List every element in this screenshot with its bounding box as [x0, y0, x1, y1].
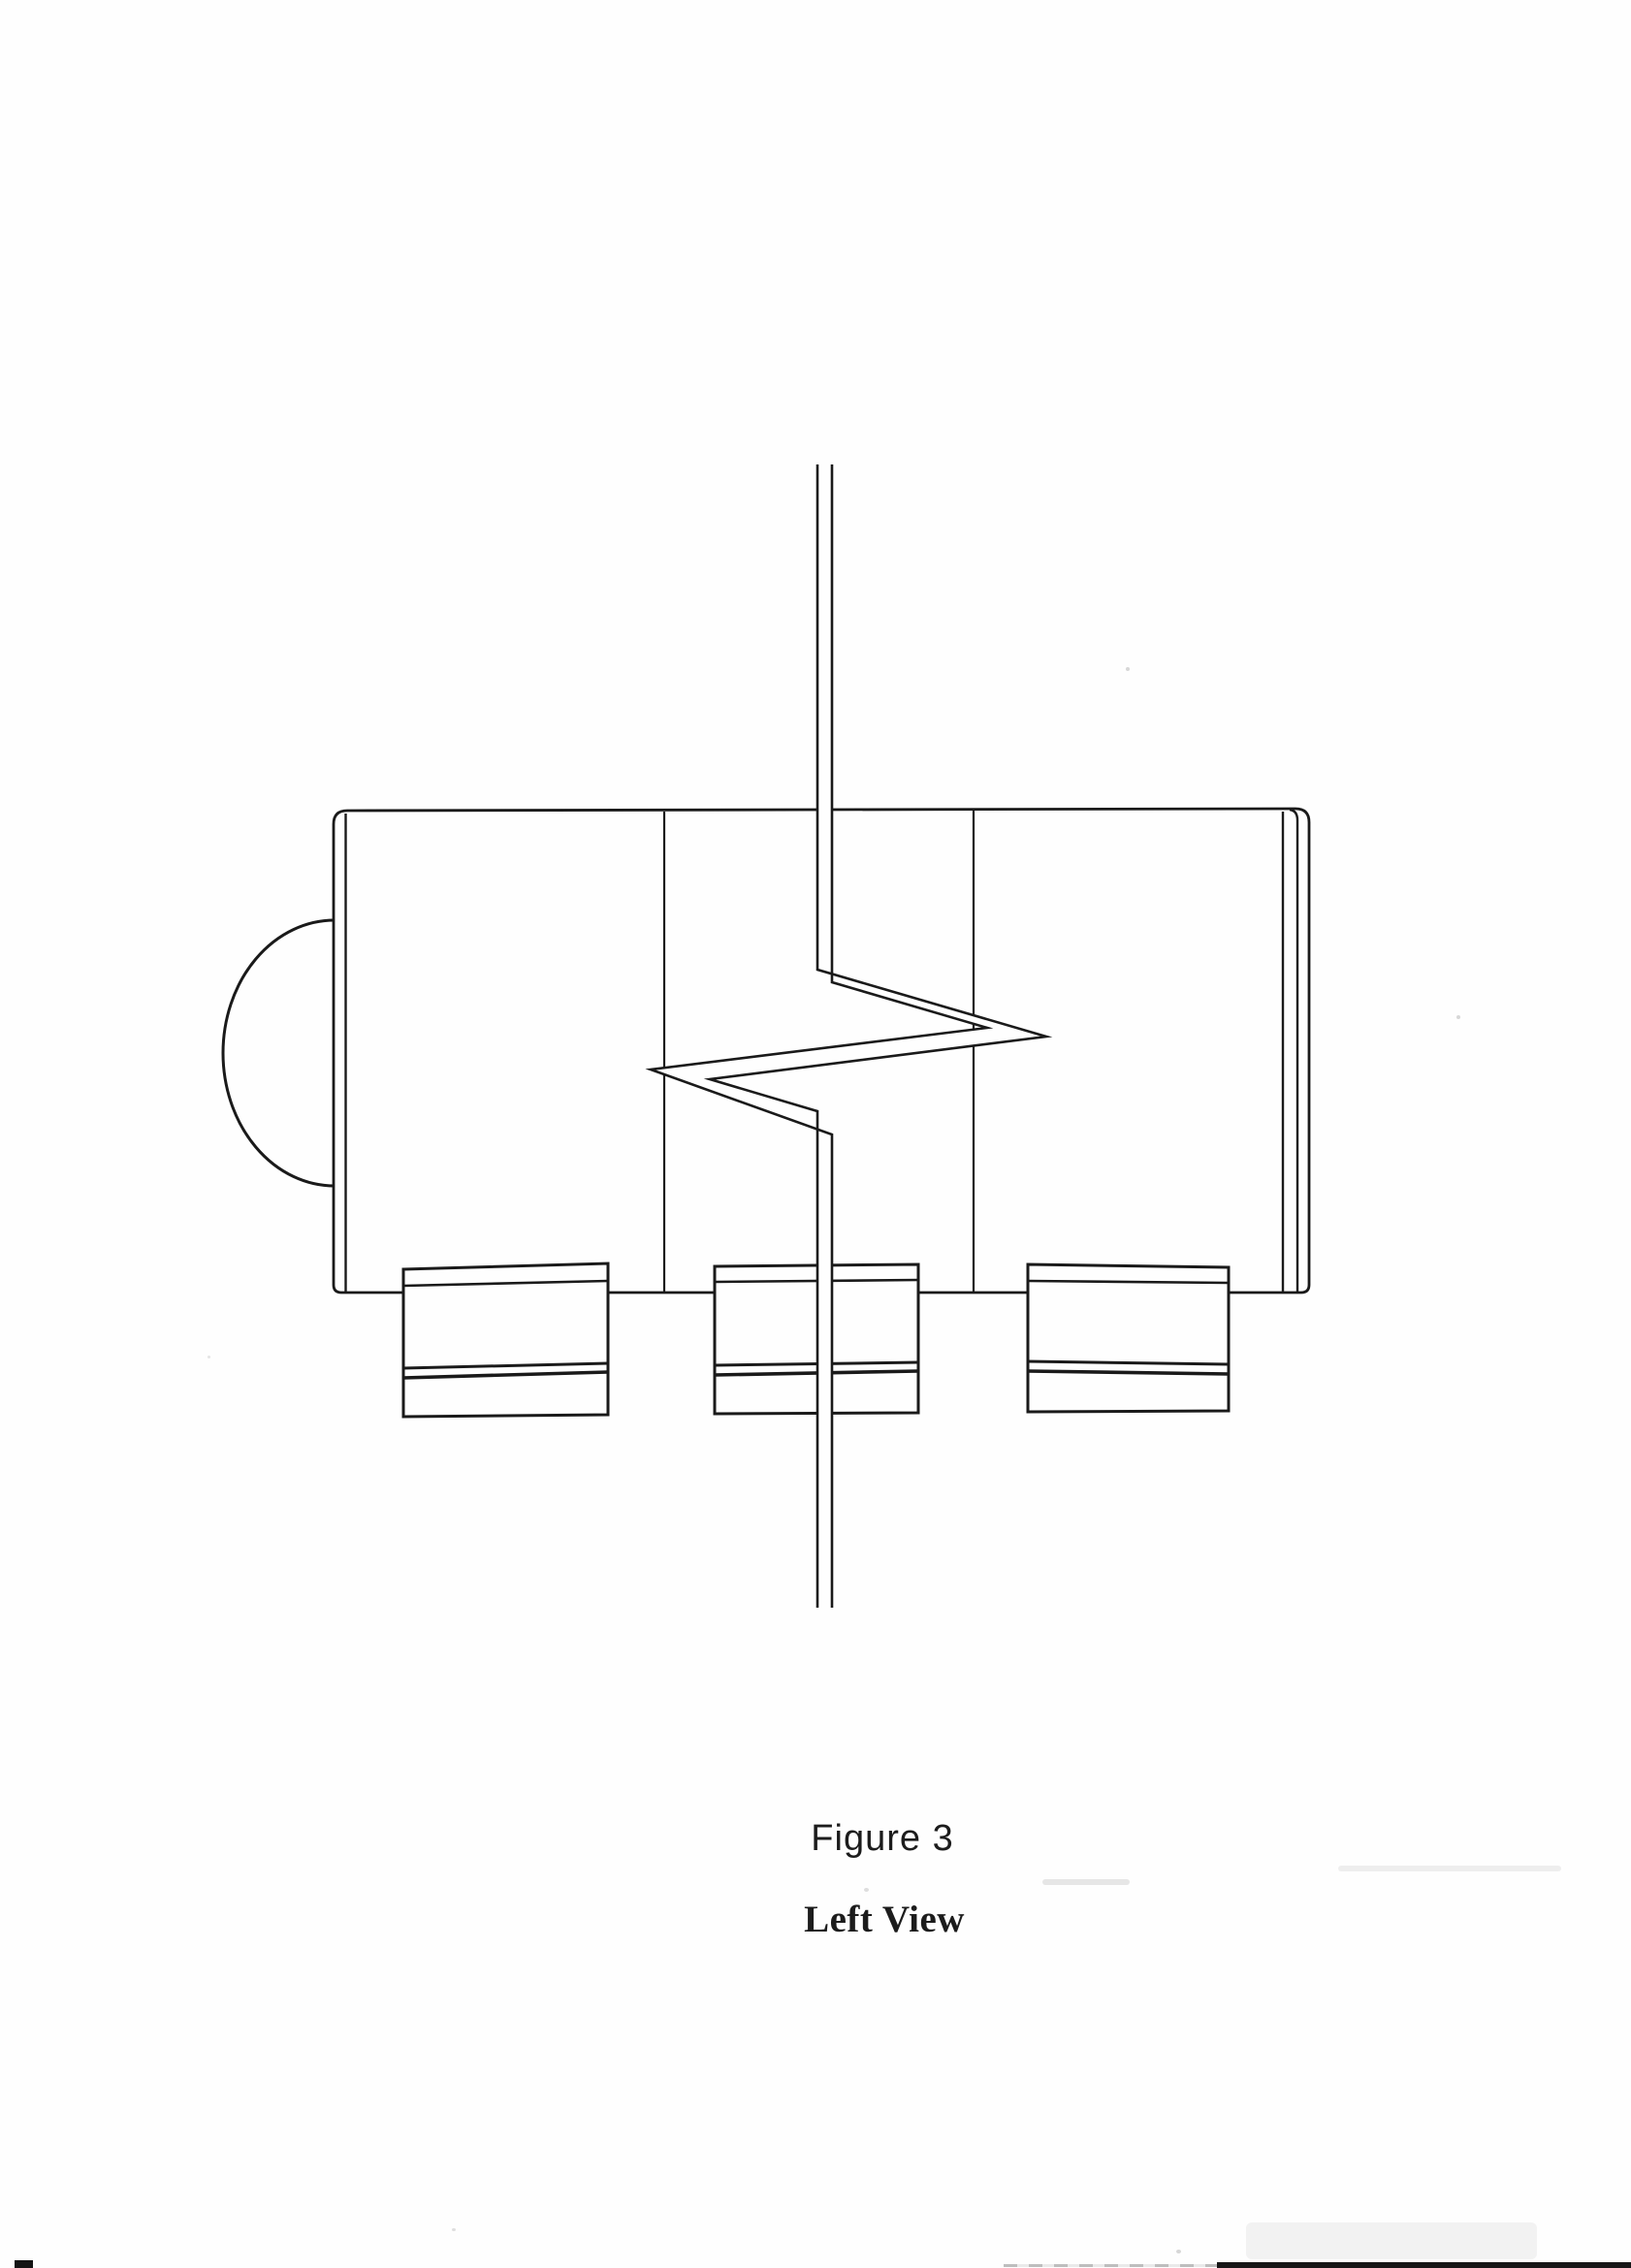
scan-speck — [208, 1356, 210, 1358]
scan-speck — [1176, 2250, 1181, 2253]
scan-edge-bar-faint — [1004, 2264, 1219, 2267]
mounting-tab-left-outline — [403, 1263, 608, 1417]
scan-speck — [1126, 667, 1130, 671]
mounting-tab-left — [403, 1263, 608, 1417]
scan-smudge-streak — [1042, 1879, 1130, 1885]
scan-speck — [1456, 1015, 1460, 1019]
shaft-with-break — [651, 464, 1046, 1608]
mounting-tab-right — [1028, 1264, 1229, 1412]
mounting-tab-right-outline — [1028, 1264, 1229, 1412]
scan-speck — [864, 1888, 869, 1892]
left-dome-outline — [223, 920, 335, 1186]
right-endcap-middle-line — [1290, 810, 1297, 1292]
scan-smudge-patch — [1246, 2222, 1537, 2259]
figure-number-caption: Figure 3 — [718, 1820, 1047, 1857]
scan-corner-mark — [15, 2260, 33, 2268]
scan-edge-bar — [1217, 2262, 1631, 2268]
shaft-ribbon-fill — [651, 464, 1046, 1608]
scanned-page: Figure 3 Left View — [0, 0, 1631, 2268]
scan-smudge-streak — [1338, 1866, 1561, 1871]
view-name-caption: Left View — [720, 1901, 1049, 1938]
scan-speck — [452, 2228, 456, 2231]
